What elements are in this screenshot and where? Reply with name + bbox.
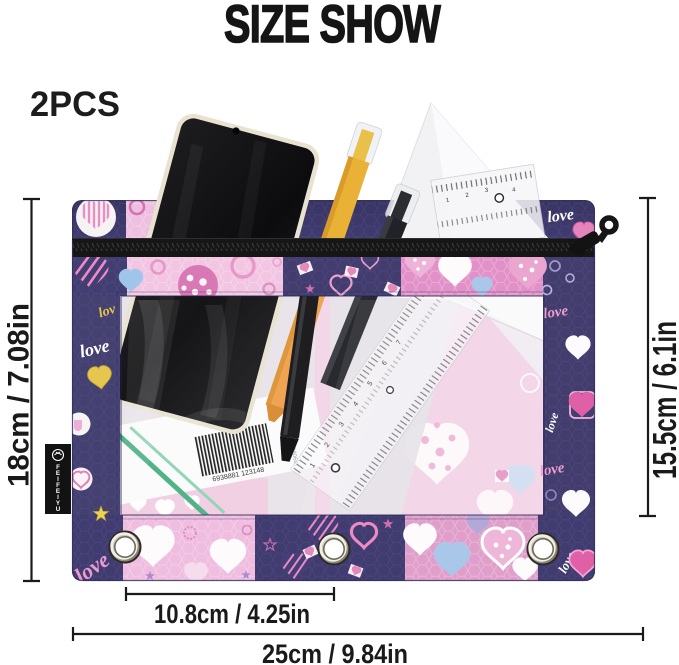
svg-text:25cm / 9.84in: 25cm / 9.84in bbox=[262, 639, 408, 665]
svg-text:love: love bbox=[546, 206, 575, 226]
svg-text:U: U bbox=[56, 506, 61, 513]
svg-text:SIZE SHOW: SIZE SHOW bbox=[224, 0, 441, 54]
svg-text:15.5cm / 6.1in: 15.5cm / 6.1in bbox=[646, 321, 679, 479]
svg-text:10.8cm / 4.25in: 10.8cm / 4.25in bbox=[154, 599, 310, 629]
svg-text:18cm / 7.08in: 18cm / 7.08in bbox=[3, 303, 36, 487]
svg-text:2PCS: 2PCS bbox=[30, 85, 120, 124]
